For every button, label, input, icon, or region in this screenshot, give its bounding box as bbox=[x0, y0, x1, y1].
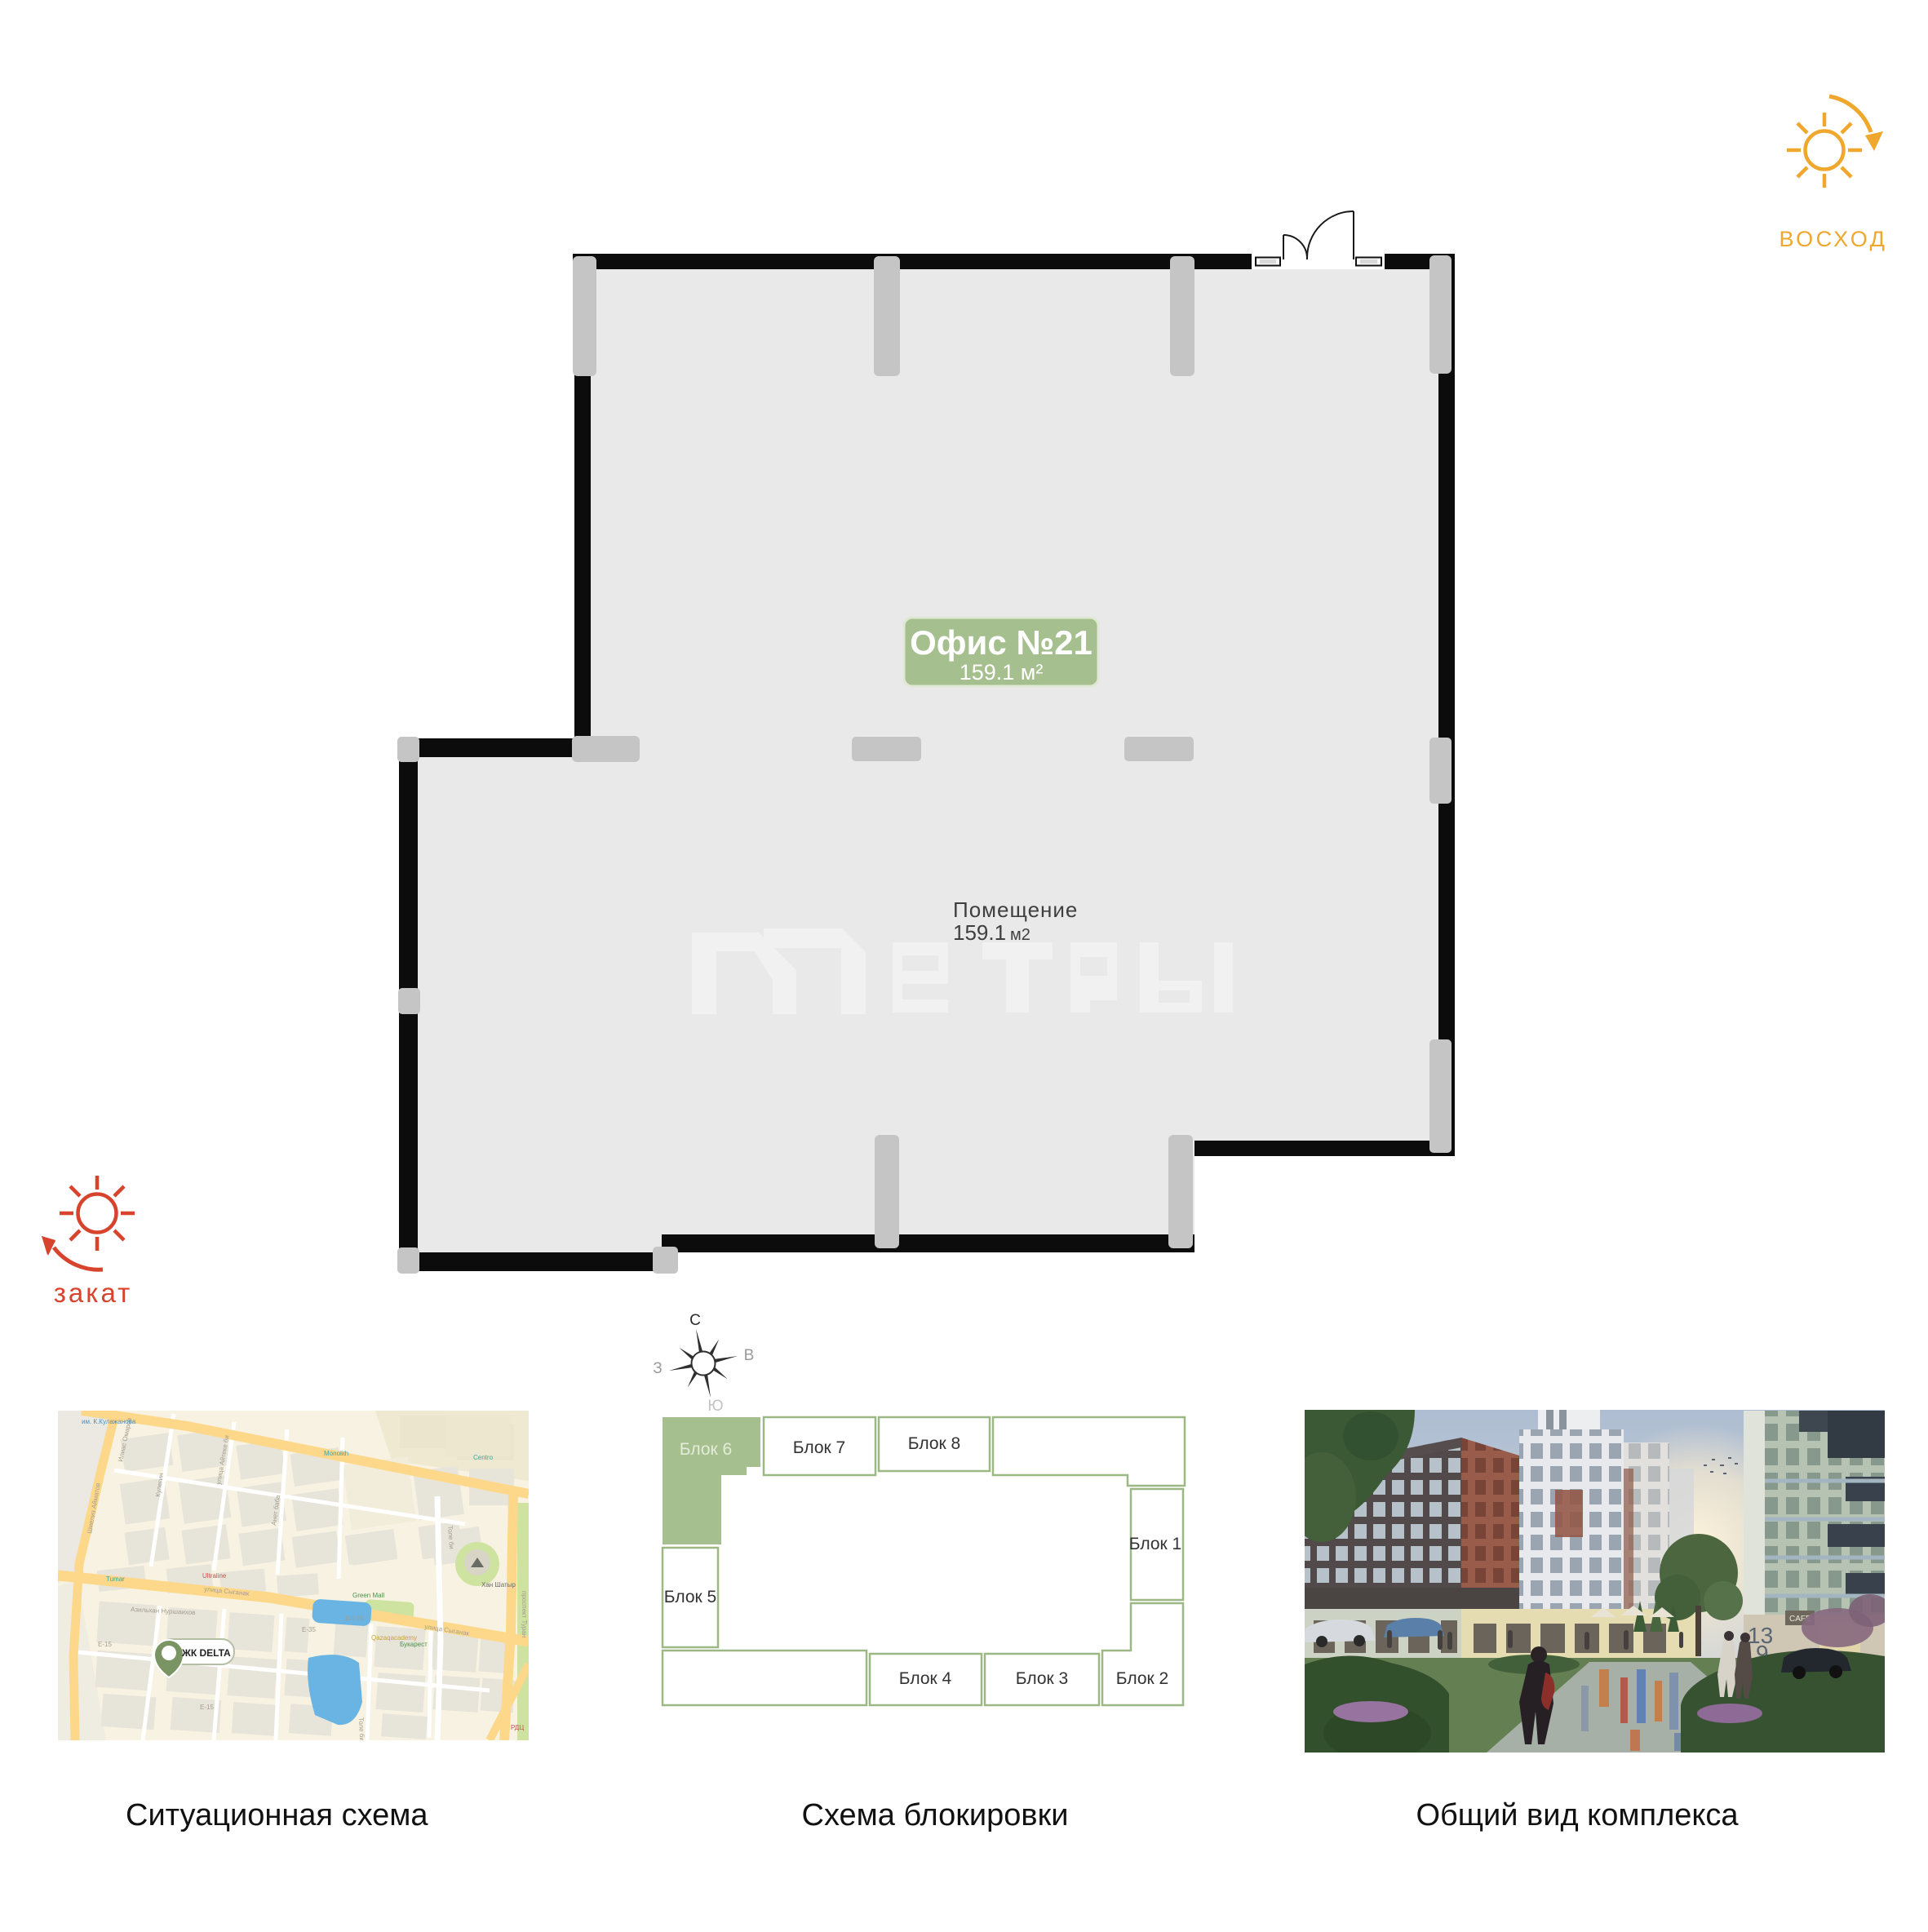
svg-text:РДЦ: РДЦ bbox=[511, 1724, 524, 1731]
svg-text:Схема блокировки: Схема блокировки bbox=[802, 1798, 1069, 1832]
svg-text:им. К.Кулажанова: им. К.Кулажанова bbox=[82, 1418, 136, 1425]
svg-text:Блок 3: Блок 3 bbox=[1016, 1669, 1068, 1688]
svg-text:Green Mall: Green Mall bbox=[352, 1592, 384, 1599]
svg-text:Блок 5: Блок 5 bbox=[664, 1588, 716, 1606]
svg-text:Толе би: Толе би bbox=[357, 1717, 366, 1741]
svg-text:E-15: E-15 bbox=[98, 1641, 112, 1648]
svg-text:Блок 7: Блок 7 bbox=[793, 1438, 845, 1457]
svg-text:E-35: E-35 bbox=[302, 1626, 316, 1633]
svg-text:Общий вид комплекса: Общий вид комплекса bbox=[1416, 1798, 1739, 1832]
svg-text:С: С bbox=[689, 1312, 701, 1329]
svg-text:Блок 8: Блок 8 bbox=[908, 1434, 960, 1453]
svg-text:З: З bbox=[653, 1360, 662, 1377]
svg-text:Блок 1: Блок 1 bbox=[1129, 1535, 1181, 1553]
svg-text:Помещение: Помещение bbox=[953, 897, 1078, 922]
svg-text:Блок 4: Блок 4 bbox=[899, 1669, 952, 1688]
svg-text:проспект Туран: проспект Туран bbox=[521, 1591, 528, 1637]
svg-text:Ситуационная схема: Ситуационная схема bbox=[126, 1798, 428, 1832]
svg-text:закат: закат bbox=[54, 1278, 132, 1308]
svg-text:Офис №21: Офис №21 bbox=[910, 623, 1093, 662]
svg-text:Monolith: Monolith bbox=[324, 1450, 348, 1457]
svg-text:Centro: Centro bbox=[473, 1454, 494, 1461]
svg-text:Ultraline: Ultraline bbox=[202, 1572, 227, 1580]
svg-text:ЖК DELTA: ЖК DELTA bbox=[181, 1647, 231, 1659]
svg-text:м2: м2 bbox=[1010, 926, 1030, 944]
svg-text:Блок 2: Блок 2 bbox=[1116, 1669, 1168, 1688]
svg-text:ВОСХОД: ВОСХОД bbox=[1780, 227, 1888, 251]
svg-text:В: В bbox=[744, 1347, 755, 1364]
svg-text:Tumar: Tumar bbox=[106, 1575, 125, 1583]
svg-text:Ю: Ю bbox=[707, 1398, 723, 1415]
svg-text:159.1 м²: 159.1 м² bbox=[960, 660, 1044, 685]
svg-text:159.1: 159.1 bbox=[953, 920, 1006, 945]
svg-text:Блок 6: Блок 6 bbox=[680, 1440, 732, 1459]
svg-text:E-15: E-15 bbox=[200, 1704, 214, 1711]
svg-text:Букарест: Букарест bbox=[400, 1641, 428, 1648]
svg-text:EK-15: EK-15 bbox=[345, 1615, 364, 1622]
svg-text:Хан Шатыр: Хан Шатыр bbox=[481, 1581, 516, 1589]
